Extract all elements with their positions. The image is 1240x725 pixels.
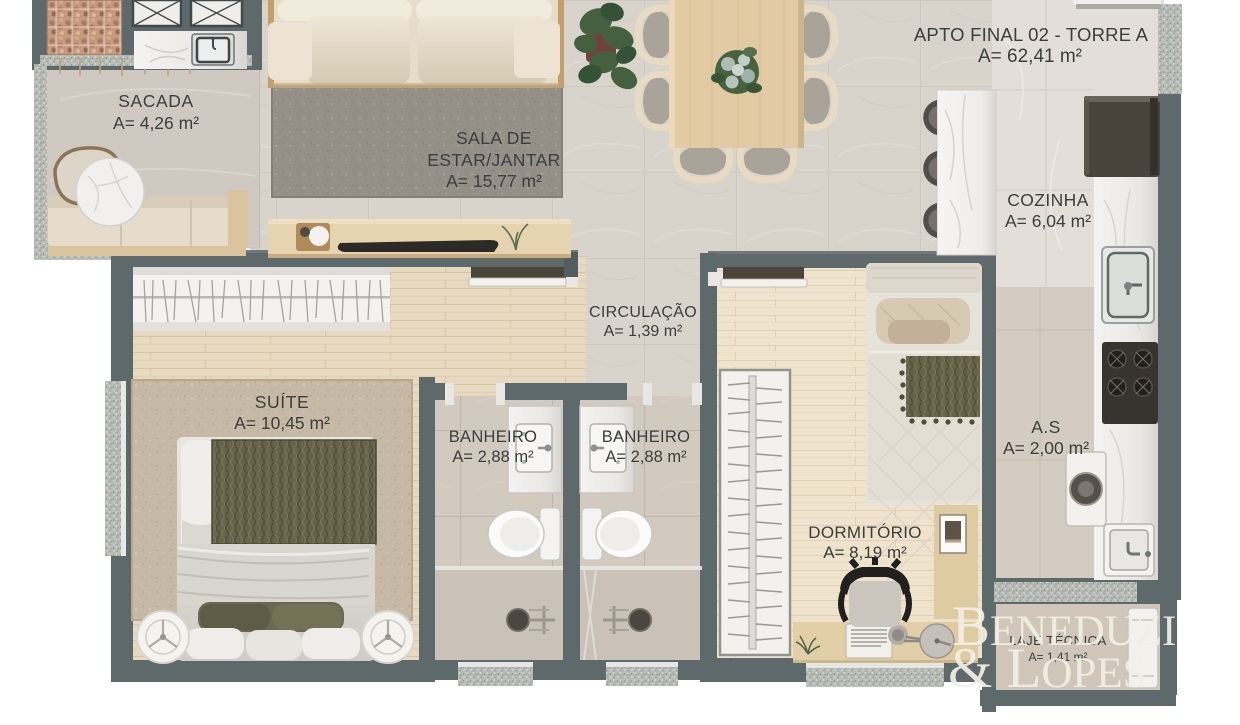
svg-text:A= 15,77 m²: A= 15,77 m²: [446, 171, 542, 191]
svg-text:A= 2,88 m²: A= 2,88 m²: [452, 448, 534, 466]
svg-text:CIRCULAÇÃO: CIRCULAÇÃO: [589, 301, 697, 321]
svg-text:COZINHA: COZINHA: [1007, 190, 1089, 210]
svg-text:A.S: A.S: [1031, 417, 1060, 437]
svg-text:A= 2,00 m²: A= 2,00 m²: [1003, 438, 1089, 458]
svg-text:ESTAR/JANTAR: ESTAR/JANTAR: [427, 150, 560, 170]
svg-text:SUÍTE: SUÍTE: [255, 392, 310, 412]
svg-text:A= 62,41 m²: A= 62,41 m²: [978, 46, 1082, 67]
svg-text:SACADA: SACADA: [118, 91, 194, 111]
svg-text:BANHEIRO: BANHEIRO: [602, 428, 691, 446]
svg-text:A= 8,19 m²: A= 8,19 m²: [823, 543, 907, 562]
svg-text:APTO FINAL 02 - TORRE A: APTO FINAL 02 - TORRE A: [914, 24, 1149, 45]
svg-text:SALA DE: SALA DE: [456, 128, 532, 148]
svg-text:A= 1,39 m²: A= 1,39 m²: [604, 323, 683, 340]
svg-text:BANHEIRO: BANHEIRO: [449, 428, 538, 446]
svg-text:A= 6,04 m²: A= 6,04 m²: [1005, 211, 1091, 231]
svg-text:A= 2,88 m²: A= 2,88 m²: [605, 448, 687, 466]
svg-text:DORMITÓRIO: DORMITÓRIO: [808, 523, 922, 542]
svg-text:A= 4,26 m²: A= 4,26 m²: [113, 113, 199, 133]
svg-text:A= 10,45 m²: A= 10,45 m²: [234, 413, 330, 433]
